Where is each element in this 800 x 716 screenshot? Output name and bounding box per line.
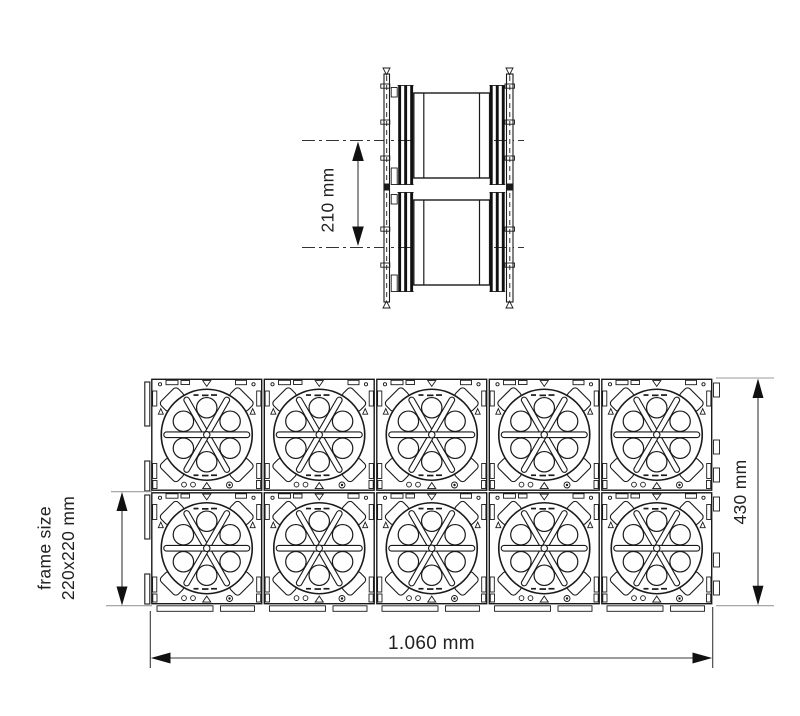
frame-foot (333, 606, 367, 612)
dimension-frame-size: frame size 220x220 mm (35, 492, 152, 606)
frame-foot (671, 606, 705, 612)
frame-foot (446, 606, 480, 612)
frame-module (602, 493, 712, 604)
side-view: 210 mm (302, 68, 524, 308)
frame-foot (558, 606, 592, 612)
frame-module (264, 493, 374, 604)
arrowhead-right-icon (693, 653, 713, 664)
arrowhead-up-icon (117, 492, 128, 511)
front-view: frame size 220x220 mm 430 mm 1.060 mm (35, 378, 774, 668)
arrowhead-left-icon (151, 653, 171, 664)
front-view-left-flanges (145, 382, 150, 604)
arrowhead-down-icon (352, 227, 364, 247)
side-view-unit-2 (391, 192, 505, 292)
frame-foot (157, 606, 213, 612)
frame-foot (607, 606, 663, 612)
arrowhead-up-icon (352, 142, 364, 162)
frame-foot (495, 606, 551, 612)
frame-module (602, 379, 712, 490)
dimension-label-frame-size: frame size (35, 506, 55, 590)
dimension-label-220x220: 220x220 mm (58, 496, 78, 600)
frame-module (489, 379, 599, 490)
dimension-label-210mm: 210 mm (318, 167, 338, 232)
frame-module (377, 493, 487, 604)
technical-drawing-page: 210 mm frame size (0, 0, 800, 716)
frame-foot (221, 606, 255, 612)
technical-drawing-canvas: 210 mm frame size (0, 0, 800, 716)
frame-module (152, 493, 262, 604)
frame-foot (270, 606, 326, 612)
frame-module (152, 379, 262, 490)
arrowhead-up-icon (753, 379, 764, 399)
module-grid (152, 379, 712, 611)
dimension-label-1060mm: 1.060 mm (388, 633, 475, 654)
frame-foot (382, 606, 438, 612)
dimension-label-430mm: 430 mm (730, 459, 750, 524)
frame-module (377, 379, 487, 490)
frame-module (264, 379, 374, 490)
dimension-overall-width: 1.060 mm (150, 607, 712, 668)
side-view-unit-1 (391, 85, 505, 185)
dimension-overall-height: 430 mm (716, 378, 774, 606)
front-view-right-tabs (714, 383, 720, 595)
arrowhead-down-icon (753, 586, 764, 606)
arrowhead-down-icon (117, 587, 128, 606)
frame-module (489, 493, 599, 604)
dimension-center-spacing: 210 mm (318, 142, 364, 247)
